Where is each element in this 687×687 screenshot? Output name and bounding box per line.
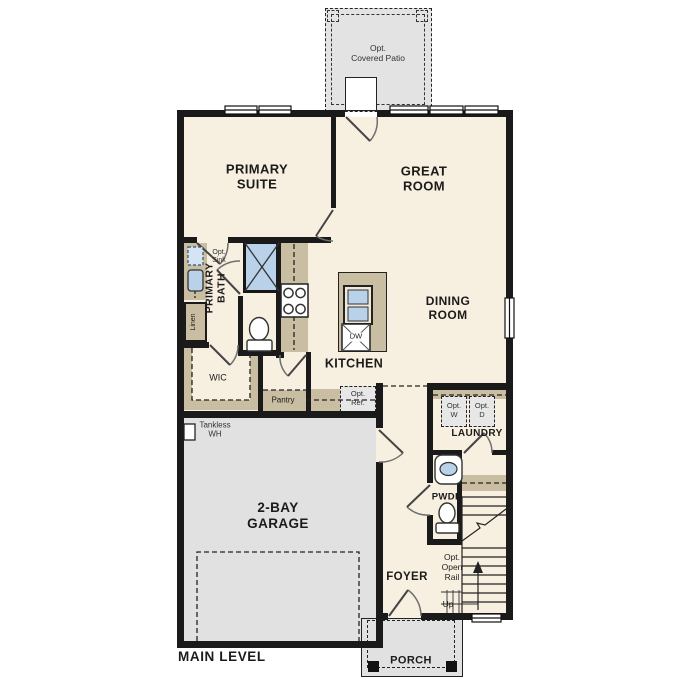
wall-top-right	[377, 110, 513, 117]
floor-plan: Opt.Covered Patio PRIMARYSUITE GREATROOM…	[0, 0, 687, 687]
wall-laundry-left	[427, 383, 433, 455]
porch-post-left	[368, 661, 379, 672]
wall-pantry-top-stub	[276, 352, 284, 358]
wall-pwdr-bottom	[427, 539, 462, 545]
wall-wic-pantry	[258, 348, 263, 411]
kitchen-label: KITCHEN	[325, 357, 383, 372]
wall-left	[177, 110, 184, 648]
wall-right	[506, 110, 513, 620]
primary-bath-label: PRIMARYBATH	[204, 263, 229, 314]
opt-sink-label: Opt.Sink	[212, 249, 226, 266]
wall-pwdr-left-a	[427, 455, 433, 483]
wall-garage-top	[177, 411, 383, 418]
laundry-label: LAUNDRY	[451, 428, 502, 440]
tankless-wh-label: TanklessWH	[199, 421, 230, 440]
dishwasher-label: DW	[349, 333, 364, 342]
opt-washer-label: Opt.W	[447, 402, 461, 420]
wall-bath-kitchen	[276, 238, 281, 358]
wic-label: WIC	[209, 373, 227, 384]
up-label: Up	[443, 599, 454, 609]
foyer-label: FOYER	[386, 571, 428, 585]
wall-bath-bottom	[177, 342, 209, 348]
stair-closet-shelf	[462, 475, 506, 491]
wall-pantry-right	[306, 352, 311, 411]
wall-laundry-bottom-right	[492, 450, 513, 455]
patio-column-left	[327, 10, 339, 22]
wall-toilet-nook-left	[238, 296, 243, 356]
porch-label: PORCH	[390, 655, 432, 668]
porch-post-right	[446, 661, 457, 672]
wall-garage-bottom	[177, 641, 383, 648]
wall-top-left	[177, 110, 345, 117]
linen-label: Linen	[190, 313, 198, 330]
covered-patio-label: Opt.Covered Patio	[351, 43, 405, 63]
dining-room-label: DININGROOM	[426, 294, 470, 322]
great-room-label: GREATROOM	[401, 164, 448, 195]
opt-dryer-label: Opt.D	[475, 402, 489, 420]
wall-foyer-bottom-right	[421, 613, 513, 620]
patio-door-threshold	[345, 77, 377, 111]
garage-label: 2-BAYGARAGE	[247, 500, 309, 532]
pwdr-label: PWDR	[432, 491, 463, 502]
wic-shelf-bottom	[184, 400, 258, 410]
opt-ref-label: Opt.Ref.	[351, 390, 365, 408]
wall-garage-right-lower	[376, 462, 383, 648]
kitchen-counter	[281, 240, 308, 352]
patio-column-right	[416, 10, 428, 22]
wall-suite-divider	[331, 110, 336, 208]
wall-suite-bottom-a	[177, 237, 197, 243]
pantry-label: Pantry	[271, 395, 294, 404]
opt-open-rail-label: Opt.OpenRail	[442, 552, 463, 582]
kitchen-counter-lower	[311, 389, 340, 411]
wall-garage-right-upper	[376, 383, 383, 428]
main-level-label: MAIN LEVEL	[178, 649, 266, 665]
wall-laundry-top	[427, 383, 513, 390]
primary-suite-label: PRIMARYSUITE	[226, 162, 288, 193]
outside-patch	[463, 620, 506, 641]
